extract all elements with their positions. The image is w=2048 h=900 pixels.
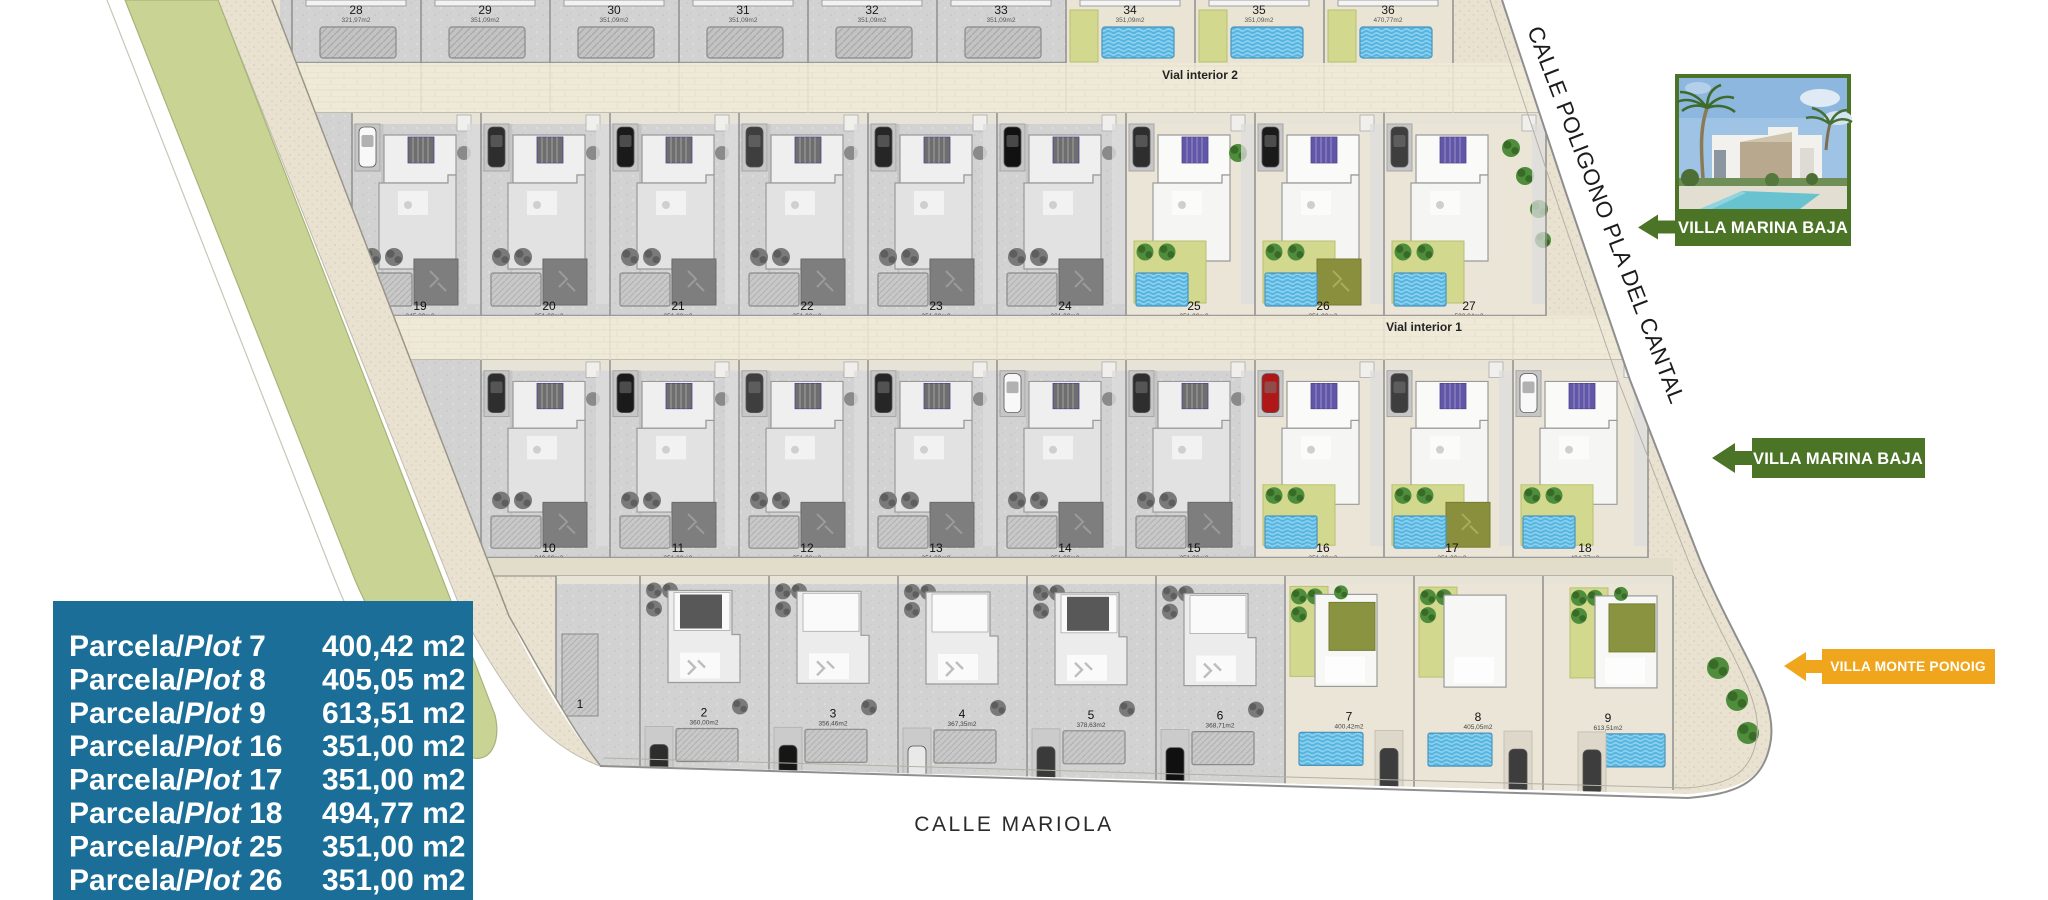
svg-text:Parcela/Plot 18: Parcela/Plot 18 bbox=[69, 797, 282, 830]
svg-text:27: 27 bbox=[1462, 299, 1476, 313]
svg-text:Parcela/Plot 8: Parcela/Plot 8 bbox=[69, 663, 266, 696]
svg-text:4: 4 bbox=[959, 707, 966, 721]
svg-text:13: 13 bbox=[929, 541, 943, 555]
svg-text:25: 25 bbox=[1187, 299, 1201, 313]
svg-text:321,97m2: 321,97m2 bbox=[342, 17, 371, 24]
svg-text:400,42m2: 400,42m2 bbox=[1335, 723, 1364, 730]
svg-text:10: 10 bbox=[542, 541, 556, 555]
svg-text:351,09m2: 351,09m2 bbox=[471, 17, 500, 24]
svg-text:32: 32 bbox=[865, 3, 879, 17]
svg-text:2: 2 bbox=[701, 706, 708, 720]
svg-text:24: 24 bbox=[1058, 299, 1072, 313]
svg-text:29: 29 bbox=[478, 3, 492, 17]
svg-text:15: 15 bbox=[1187, 541, 1201, 555]
svg-text:VILLA MARINA BAJA: VILLA MARINA BAJA bbox=[1678, 219, 1848, 237]
svg-text:Parcela/Plot 25: Parcela/Plot 25 bbox=[69, 830, 282, 863]
svg-text:Vial interior 2: Vial interior 2 bbox=[1162, 68, 1238, 82]
svg-text:6: 6 bbox=[1217, 709, 1224, 723]
svg-text:31: 31 bbox=[736, 3, 750, 17]
svg-text:28: 28 bbox=[349, 3, 363, 17]
svg-text:VILLA MARINA BAJA: VILLA MARINA BAJA bbox=[1753, 450, 1923, 468]
svg-text:16: 16 bbox=[1316, 541, 1330, 555]
svg-text:CALLE MARIOLA: CALLE MARIOLA bbox=[914, 813, 1113, 836]
svg-text:3: 3 bbox=[830, 706, 837, 720]
svg-text:351,09m2: 351,09m2 bbox=[600, 17, 629, 24]
svg-text:34: 34 bbox=[1123, 3, 1137, 17]
svg-text:26: 26 bbox=[1316, 299, 1330, 313]
svg-text:Vial interior 1: Vial interior 1 bbox=[1386, 320, 1462, 334]
svg-text:33: 33 bbox=[994, 3, 1008, 17]
svg-text:Parcela/Plot 7: Parcela/Plot 7 bbox=[69, 630, 266, 663]
svg-text:30: 30 bbox=[607, 3, 621, 17]
svg-text:21: 21 bbox=[671, 299, 685, 313]
svg-text:Parcela/Plot 16: Parcela/Plot 16 bbox=[69, 730, 282, 763]
svg-text:351,09m2: 351,09m2 bbox=[1116, 17, 1145, 24]
svg-text:613,51 m2: 613,51 m2 bbox=[322, 697, 465, 730]
svg-text:35: 35 bbox=[1252, 3, 1266, 17]
svg-text:360,00m2: 360,00m2 bbox=[690, 720, 719, 727]
svg-text:368,71m2: 368,71m2 bbox=[1206, 723, 1235, 730]
svg-text:400,42 m2: 400,42 m2 bbox=[322, 630, 465, 663]
svg-text:351,09m2: 351,09m2 bbox=[987, 17, 1016, 24]
svg-text:356,46m2: 356,46m2 bbox=[819, 720, 848, 727]
svg-text:17: 17 bbox=[1445, 541, 1458, 555]
svg-text:470,77m2: 470,77m2 bbox=[1374, 17, 1403, 24]
svg-text:5: 5 bbox=[1088, 708, 1095, 722]
svg-text:12: 12 bbox=[800, 541, 813, 555]
svg-text:20: 20 bbox=[542, 299, 556, 313]
svg-text:405,05 m2: 405,05 m2 bbox=[322, 663, 465, 696]
svg-text:8: 8 bbox=[1475, 710, 1482, 724]
svg-text:18: 18 bbox=[1578, 541, 1592, 555]
svg-text:7: 7 bbox=[1346, 709, 1353, 723]
svg-text:351,09m2: 351,09m2 bbox=[1245, 17, 1274, 24]
svg-text:351,09m2: 351,09m2 bbox=[729, 17, 758, 24]
svg-text:19: 19 bbox=[413, 299, 427, 313]
svg-text:Parcela/Plot 9: Parcela/Plot 9 bbox=[69, 697, 266, 730]
svg-text:613,51m2: 613,51m2 bbox=[1594, 725, 1623, 732]
svg-text:11: 11 bbox=[672, 541, 685, 555]
svg-text:9: 9 bbox=[1605, 711, 1612, 725]
svg-text:378,63m2: 378,63m2 bbox=[1077, 722, 1106, 729]
svg-text:22: 22 bbox=[800, 299, 814, 313]
svg-text:23: 23 bbox=[929, 299, 943, 313]
svg-text:405,05m2: 405,05m2 bbox=[1464, 724, 1493, 731]
svg-text:351,00 m2: 351,00 m2 bbox=[322, 830, 465, 863]
svg-text:351,00 m2: 351,00 m2 bbox=[322, 864, 465, 897]
svg-text:351,00 m2: 351,00 m2 bbox=[322, 764, 465, 797]
svg-text:494,77 m2: 494,77 m2 bbox=[322, 797, 465, 830]
svg-text:1: 1 bbox=[577, 697, 584, 711]
svg-text:14: 14 bbox=[1058, 541, 1072, 555]
svg-text:367,35m2: 367,35m2 bbox=[948, 721, 977, 728]
svg-text:VILLA MONTE PONOIG: VILLA MONTE PONOIG bbox=[1830, 659, 1986, 674]
svg-text:351,00 m2: 351,00 m2 bbox=[322, 730, 465, 763]
svg-text:Parcela/Plot 17: Parcela/Plot 17 bbox=[69, 764, 282, 797]
svg-text:351,09m2: 351,09m2 bbox=[858, 17, 887, 24]
svg-text:Parcela/Plot 26: Parcela/Plot 26 bbox=[69, 864, 282, 897]
svg-text:36: 36 bbox=[1381, 3, 1395, 17]
